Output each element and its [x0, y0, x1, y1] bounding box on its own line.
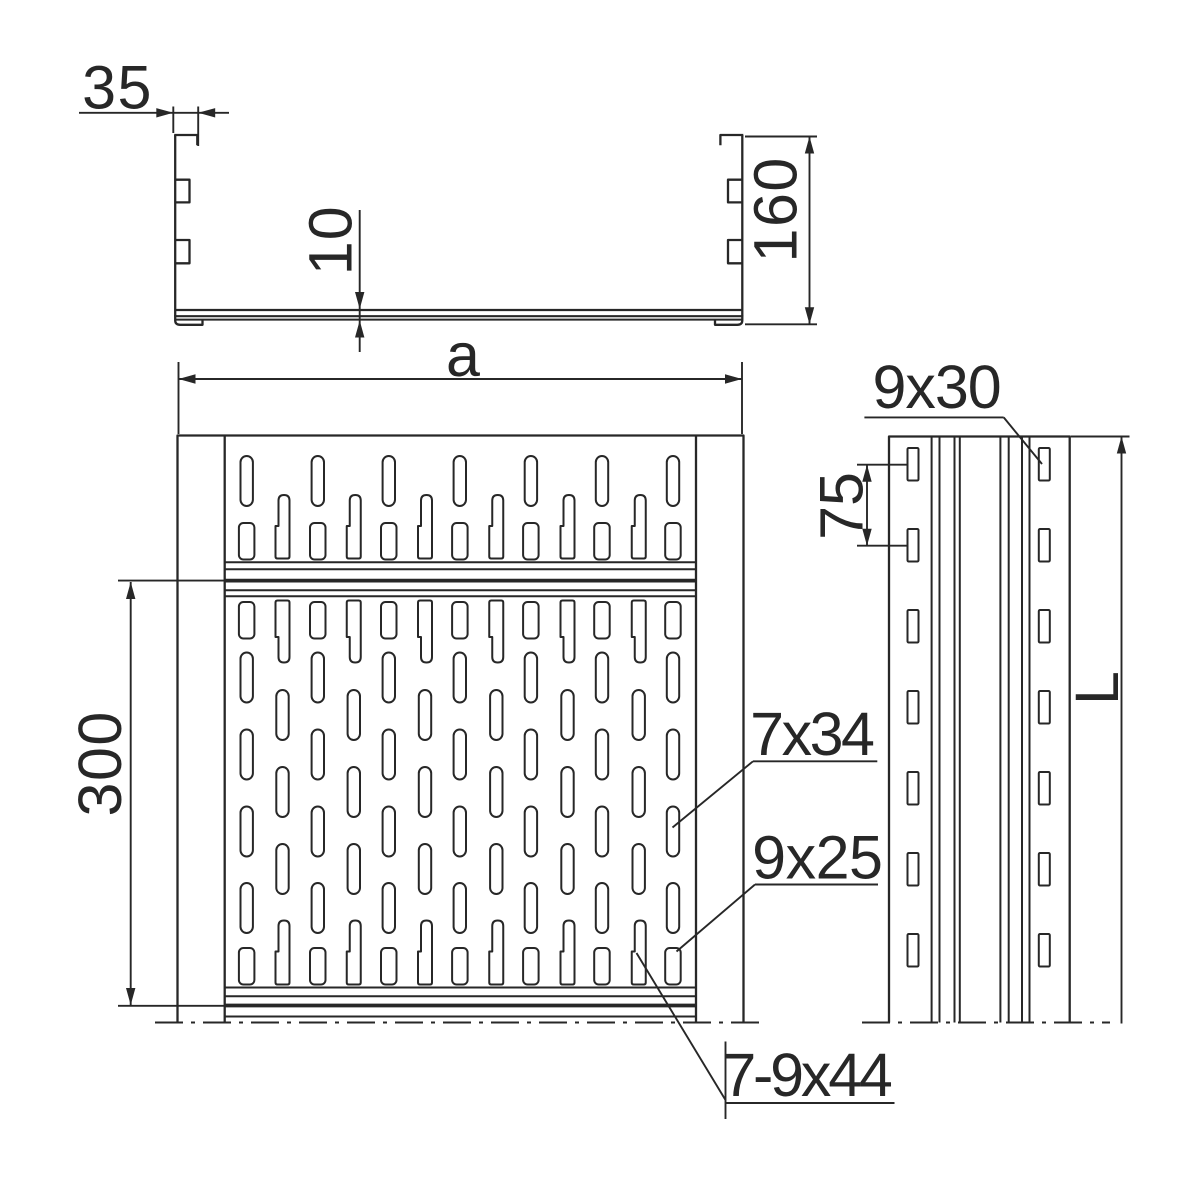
svg-text:9x30: 9x30 — [872, 353, 1000, 421]
svg-text:9x25: 9x25 — [752, 824, 882, 892]
svg-text:10: 10 — [297, 205, 365, 275]
svg-text:160: 160 — [742, 156, 810, 262]
svg-text:L: L — [1063, 671, 1131, 705]
svg-text:35: 35 — [82, 54, 153, 122]
svg-text:300: 300 — [66, 710, 134, 816]
svg-text:a: a — [446, 321, 480, 389]
svg-text:7x34: 7x34 — [750, 700, 874, 768]
svg-text:7-9x44: 7-9x44 — [722, 1041, 892, 1109]
svg-text:75: 75 — [808, 472, 876, 540]
